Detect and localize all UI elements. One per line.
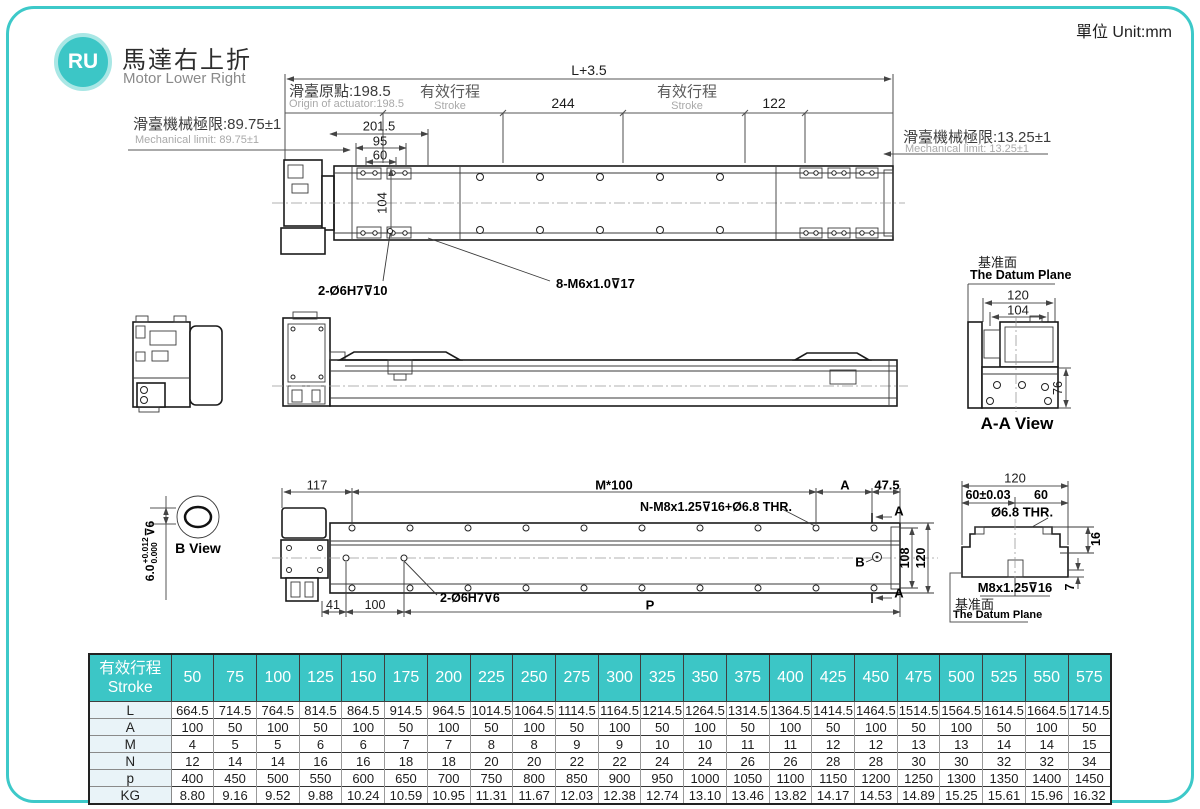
table-cell: 100 bbox=[513, 719, 556, 736]
side-view-drawing bbox=[272, 312, 908, 406]
table-cell: 750 bbox=[470, 770, 513, 787]
dim-a-mark: A bbox=[840, 478, 849, 493]
table-cell: 50 bbox=[726, 719, 769, 736]
table-cell: 11.67 bbox=[513, 787, 556, 805]
table-row: M455667788991010111112121313141415 bbox=[89, 736, 1111, 753]
dim-total-length: L+3.5 bbox=[571, 62, 606, 78]
table-cell: 5 bbox=[214, 736, 257, 753]
page-subtitle: Motor Lower Right bbox=[123, 70, 246, 87]
dim-47-5: 47.5 bbox=[874, 478, 899, 493]
table-cell: 100 bbox=[342, 719, 385, 736]
table-row-label: N bbox=[89, 753, 171, 770]
table-cell: 1014.5 bbox=[470, 702, 513, 719]
stroke-column-header: 50 bbox=[171, 654, 214, 702]
section-mark-a-top: A bbox=[894, 504, 903, 519]
table-cell: 14.89 bbox=[897, 787, 940, 805]
table-cell: 12 bbox=[171, 753, 214, 770]
stroke-column-header: 200 bbox=[427, 654, 470, 702]
table-cell: 50 bbox=[1068, 719, 1111, 736]
table-cell: 1450 bbox=[1068, 770, 1111, 787]
stroke-column-header: 500 bbox=[940, 654, 983, 702]
table-cell: 32 bbox=[983, 753, 1026, 770]
sec-dim-7: 7 bbox=[1063, 584, 1077, 591]
stroke-column-header: 125 bbox=[299, 654, 342, 702]
note-dowel-top: 2-Ø6H7⊽10 bbox=[318, 283, 388, 299]
table-cell: 12.74 bbox=[641, 787, 684, 805]
table-cell: 13 bbox=[940, 736, 983, 753]
table-cell: 50 bbox=[385, 719, 428, 736]
table-cell: 12 bbox=[812, 736, 855, 753]
table-cell: 18 bbox=[427, 753, 470, 770]
aa-dim-120: 120 bbox=[1007, 288, 1029, 303]
aa-dim-76: 76 bbox=[1051, 381, 1065, 395]
table-cell: 11.31 bbox=[470, 787, 513, 805]
note-dowel-bottom: 2-Ø6H7⊽6 bbox=[440, 590, 500, 605]
stroke-label-en: Stroke bbox=[434, 100, 466, 112]
table-cell: 15.61 bbox=[983, 787, 1026, 805]
stroke-label-en-2: Stroke bbox=[671, 100, 703, 112]
stroke-column-header: 75 bbox=[214, 654, 257, 702]
table-cell: 8.80 bbox=[171, 787, 214, 805]
stroke-label-zh-2: 有效行程 bbox=[657, 81, 717, 102]
stroke-column-header: 250 bbox=[513, 654, 556, 702]
table-cell: 1400 bbox=[1025, 770, 1068, 787]
table-cell: 1150 bbox=[812, 770, 855, 787]
table-cell: 950 bbox=[641, 770, 684, 787]
table-cell: 28 bbox=[855, 753, 898, 770]
table-cell: 50 bbox=[299, 719, 342, 736]
table-cell: 9 bbox=[598, 736, 641, 753]
table-cell: 10.24 bbox=[342, 787, 385, 805]
stroke-column-header: 100 bbox=[256, 654, 299, 702]
table-cell: 8 bbox=[513, 736, 556, 753]
table-cell: 12 bbox=[855, 736, 898, 753]
table-cell: 15.96 bbox=[1025, 787, 1068, 805]
table-cell: 22 bbox=[555, 753, 598, 770]
stroke-column-header: 525 bbox=[983, 654, 1026, 702]
dim-120-bottom: 120 bbox=[914, 548, 928, 569]
table-cell: 6 bbox=[299, 736, 342, 753]
stroke-column-header: 325 bbox=[641, 654, 684, 702]
table-cell: 1564.5 bbox=[940, 702, 983, 719]
b-view-tolerance: 6.0 +0.012 0.000 ⊽6 bbox=[141, 521, 159, 581]
section-mark-a-bottom: A bbox=[894, 586, 903, 601]
table-cell: 8 bbox=[470, 736, 513, 753]
table-cell: 50 bbox=[214, 719, 257, 736]
table-cell: 14.17 bbox=[812, 787, 855, 805]
stroke-column-header: 375 bbox=[726, 654, 769, 702]
table-cell: 32 bbox=[1025, 753, 1068, 770]
dim-100: 100 bbox=[365, 598, 386, 612]
table-cell: 400 bbox=[171, 770, 214, 787]
table-cell: 13.82 bbox=[769, 787, 812, 805]
table-row: A100501005010050100501005010050100501005… bbox=[89, 719, 1111, 736]
table-cell: 26 bbox=[726, 753, 769, 770]
aa-datum-en: The Datum Plane bbox=[970, 268, 1071, 282]
stroke-column-header: 450 bbox=[855, 654, 898, 702]
table-cell: 9.88 bbox=[299, 787, 342, 805]
table-row: p400450500550600650700750800850900950100… bbox=[89, 770, 1111, 787]
limit-right-en: Mechanical limit: 13.25±1 bbox=[905, 143, 1029, 155]
table-cell: 22 bbox=[598, 753, 641, 770]
table-cell: 1264.5 bbox=[684, 702, 727, 719]
table-cell: 14 bbox=[256, 753, 299, 770]
note-screws-top: 8-M6x1.0⊽17 bbox=[556, 276, 635, 292]
table-cell: 1414.5 bbox=[812, 702, 855, 719]
table-cell: 6 bbox=[342, 736, 385, 753]
mark-b: B bbox=[855, 555, 864, 570]
table-cell: 450 bbox=[214, 770, 257, 787]
table-cell: 1364.5 bbox=[769, 702, 812, 719]
dim-41: 41 bbox=[326, 598, 340, 612]
aa-view-title: A-A View bbox=[981, 414, 1054, 434]
table-cell: 600 bbox=[342, 770, 385, 787]
table-cell: 100 bbox=[171, 719, 214, 736]
table-cell: 11 bbox=[726, 736, 769, 753]
table-cell: 100 bbox=[769, 719, 812, 736]
table-cell: 664.5 bbox=[171, 702, 214, 719]
spec-table: 有效行程Stroke507510012515017520022525027530… bbox=[88, 653, 1112, 805]
limit-left-zh: 滑臺機械極限:89.75±1 bbox=[133, 113, 281, 134]
stroke-column-header: 300 bbox=[598, 654, 641, 702]
stroke-column-header: 225 bbox=[470, 654, 513, 702]
stroke-column-header: 350 bbox=[684, 654, 727, 702]
table-cell: 26 bbox=[769, 753, 812, 770]
dim-122: 122 bbox=[762, 95, 785, 111]
origin-label-en: Origin of actuator:198.5 bbox=[289, 98, 404, 110]
table-cell: 100 bbox=[940, 719, 983, 736]
table-cell: 50 bbox=[641, 719, 684, 736]
stroke-column-header: 275 bbox=[555, 654, 598, 702]
table-cell: 1250 bbox=[897, 770, 940, 787]
datasheet-page: RU 馬達右上折 Motor Lower Right 單位 Unit:mm L+… bbox=[0, 0, 1200, 809]
table-cell: 10 bbox=[684, 736, 727, 753]
tolerance-lower: 0.000 bbox=[150, 537, 159, 563]
dim-104: 104 bbox=[375, 192, 390, 214]
sec-dim-16: 16 bbox=[1089, 532, 1103, 546]
table-cell: 50 bbox=[897, 719, 940, 736]
table-cell: 9 bbox=[555, 736, 598, 753]
tolerance-base: 6.0 bbox=[143, 565, 157, 582]
table-cell: 7 bbox=[385, 736, 428, 753]
stroke-column-header: 150 bbox=[342, 654, 385, 702]
table-cell: 12.38 bbox=[598, 787, 641, 805]
table-cell: 14 bbox=[983, 736, 1026, 753]
table-row-label: A bbox=[89, 719, 171, 736]
table-cell: 9.52 bbox=[256, 787, 299, 805]
table-cell: 11 bbox=[769, 736, 812, 753]
table-cell: 10.59 bbox=[385, 787, 428, 805]
table-cell: 1514.5 bbox=[897, 702, 940, 719]
sec-dim-120: 120 bbox=[1004, 471, 1026, 486]
table-row-label: p bbox=[89, 770, 171, 787]
table-cell: 18 bbox=[385, 753, 428, 770]
unit-label: 單位 Unit:mm bbox=[1076, 18, 1172, 42]
table-cell: 1000 bbox=[684, 770, 727, 787]
table-cell: 16 bbox=[299, 753, 342, 770]
stroke-label-zh: 有效行程 bbox=[420, 81, 480, 102]
table-cell: 1714.5 bbox=[1068, 702, 1111, 719]
table-cell: 20 bbox=[513, 753, 556, 770]
table-cell: 1614.5 bbox=[983, 702, 1026, 719]
stroke-column-header: 425 bbox=[812, 654, 855, 702]
table-cell: 864.5 bbox=[342, 702, 385, 719]
table-header-stroke: 有效行程Stroke bbox=[89, 654, 171, 702]
b-view-title: B View bbox=[175, 540, 221, 556]
limit-left-en: Mechanical limit: 89.75±1 bbox=[135, 134, 259, 146]
table-cell: 764.5 bbox=[256, 702, 299, 719]
dim-60: 60 bbox=[373, 148, 387, 163]
table-cell: 24 bbox=[641, 753, 684, 770]
table-cell: 1300 bbox=[940, 770, 983, 787]
sec-datum-en: The Datum Plane bbox=[953, 609, 1042, 621]
stroke-column-header: 550 bbox=[1025, 654, 1068, 702]
table-cell: 700 bbox=[427, 770, 470, 787]
table-cell: 50 bbox=[555, 719, 598, 736]
series-badge: RU bbox=[54, 33, 112, 91]
table-cell: 800 bbox=[513, 770, 556, 787]
table-cell: 1100 bbox=[769, 770, 812, 787]
table-cell: 4 bbox=[171, 736, 214, 753]
table-cell: 100 bbox=[427, 719, 470, 736]
table-cell: 650 bbox=[385, 770, 428, 787]
table-cell: 28 bbox=[812, 753, 855, 770]
table-cell: 900 bbox=[598, 770, 641, 787]
table-cell: 20 bbox=[470, 753, 513, 770]
table-cell: 1114.5 bbox=[555, 702, 598, 719]
note-screws-bottom: N-M8x1.25⊽16+Ø6.8 THR. bbox=[640, 499, 792, 514]
table-row-label: L bbox=[89, 702, 171, 719]
table-cell: 914.5 bbox=[385, 702, 428, 719]
table-cell: 14 bbox=[214, 753, 257, 770]
table-cell: 14 bbox=[1025, 736, 1068, 753]
table-row-label: M bbox=[89, 736, 171, 753]
stroke-column-header: 475 bbox=[897, 654, 940, 702]
table-cell: 500 bbox=[256, 770, 299, 787]
table-cell: 10 bbox=[641, 736, 684, 753]
table-row: N121414161618182020222224242626282830303… bbox=[89, 753, 1111, 770]
table-cell: 50 bbox=[983, 719, 1026, 736]
table-cell: 10.95 bbox=[427, 787, 470, 805]
table-cell: 100 bbox=[256, 719, 299, 736]
table-cell: 14.53 bbox=[855, 787, 898, 805]
table-row: KG8.809.169.529.8810.2410.5910.9511.3111… bbox=[89, 787, 1111, 805]
table-cell: 1164.5 bbox=[598, 702, 641, 719]
table-cell: 24 bbox=[684, 753, 727, 770]
stroke-column-header: 175 bbox=[385, 654, 428, 702]
aa-dim-104: 104 bbox=[1007, 303, 1029, 318]
table-cell: 15 bbox=[1068, 736, 1111, 753]
table-cell: 13 bbox=[897, 736, 940, 753]
table-cell: 15.25 bbox=[940, 787, 983, 805]
table-cell: 16 bbox=[342, 753, 385, 770]
table-cell: 100 bbox=[855, 719, 898, 736]
dim-117: 117 bbox=[307, 478, 328, 493]
stroke-column-header: 575 bbox=[1068, 654, 1111, 702]
table-cell: 12.03 bbox=[555, 787, 598, 805]
table-cell: 13.46 bbox=[726, 787, 769, 805]
table-cell: 550 bbox=[299, 770, 342, 787]
sec-dim-60tol: 60±0.03 bbox=[965, 488, 1010, 502]
table-cell: 30 bbox=[897, 753, 940, 770]
table-cell: 9.16 bbox=[214, 787, 257, 805]
table-cell: 1464.5 bbox=[855, 702, 898, 719]
table-cell: 964.5 bbox=[427, 702, 470, 719]
table-cell: 714.5 bbox=[214, 702, 257, 719]
table-cell: 100 bbox=[684, 719, 727, 736]
table-cell: 1664.5 bbox=[1025, 702, 1068, 719]
table-cell: 100 bbox=[1025, 719, 1068, 736]
table-cell: 30 bbox=[940, 753, 983, 770]
top-plan-view-drawing bbox=[128, 74, 1048, 281]
table-cell: 16.32 bbox=[1068, 787, 1111, 805]
dim-108: 108 bbox=[898, 548, 912, 569]
dim-201-5: 201.5 bbox=[363, 119, 396, 134]
stroke-column-header: 400 bbox=[769, 654, 812, 702]
tolerance-depth: ⊽6 bbox=[143, 521, 157, 536]
table-cell: 50 bbox=[470, 719, 513, 736]
table-cell: 7 bbox=[427, 736, 470, 753]
dim-244: 244 bbox=[551, 95, 574, 111]
table-cell: 1050 bbox=[726, 770, 769, 787]
table-cell: 850 bbox=[555, 770, 598, 787]
table-cell: 13.10 bbox=[684, 787, 727, 805]
table-cell: 5 bbox=[256, 736, 299, 753]
table-cell: 1214.5 bbox=[641, 702, 684, 719]
table-cell: 1064.5 bbox=[513, 702, 556, 719]
end-view-drawing bbox=[133, 316, 222, 412]
dim-pitch: M*100 bbox=[595, 478, 633, 493]
table-cell: 34 bbox=[1068, 753, 1111, 770]
table-cell: 1314.5 bbox=[726, 702, 769, 719]
table-cell: 100 bbox=[598, 719, 641, 736]
sec-note-thr: Ø6.8 THR. bbox=[991, 505, 1053, 520]
table-row-label: KG bbox=[89, 787, 171, 805]
dim-95: 95 bbox=[373, 134, 387, 149]
table-cell: 50 bbox=[812, 719, 855, 736]
table-cell: 1200 bbox=[855, 770, 898, 787]
table-cell: 814.5 bbox=[299, 702, 342, 719]
table-row: L664.5714.5764.5814.5864.5914.5964.51014… bbox=[89, 702, 1111, 719]
sec-dim-60: 60 bbox=[1034, 488, 1048, 502]
table-cell: 1350 bbox=[983, 770, 1026, 787]
dim-p: P bbox=[646, 598, 655, 613]
